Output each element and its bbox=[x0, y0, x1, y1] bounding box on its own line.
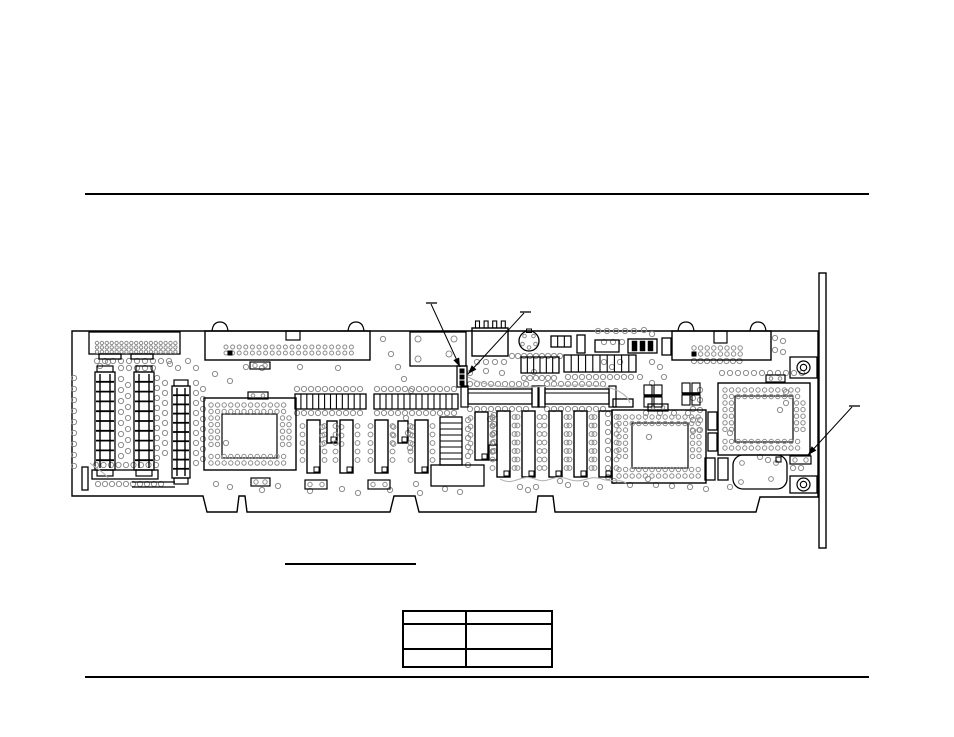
connector-tab bbox=[99, 354, 121, 359]
relay-pads bbox=[415, 336, 457, 362]
edge-connector-left-pins bbox=[95, 341, 177, 353]
small-ic bbox=[82, 467, 88, 490]
legend-cell bbox=[467, 625, 551, 650]
resistor-pack bbox=[295, 394, 366, 409]
aux-header-connector bbox=[672, 322, 771, 360]
leader-line bbox=[426, 303, 460, 367]
small-ic bbox=[708, 433, 717, 451]
dram-chip bbox=[542, 411, 569, 477]
pga-chip-left bbox=[204, 392, 296, 470]
jumper-pads bbox=[251, 478, 270, 486]
oscillator-can bbox=[733, 455, 787, 489]
crystal-oscillator bbox=[431, 465, 484, 486]
bracket bbox=[819, 273, 826, 548]
jumper-pads bbox=[305, 480, 327, 489]
config-jumper bbox=[457, 366, 467, 387]
memory-socket-3 bbox=[172, 380, 190, 484]
via-pair bbox=[790, 465, 803, 470]
legend-cell bbox=[467, 612, 551, 625]
pin1-mark bbox=[228, 351, 232, 355]
resistor-pack bbox=[564, 355, 636, 372]
legend-cell bbox=[404, 625, 467, 650]
memory-socket-1 bbox=[95, 366, 115, 476]
legend-cell bbox=[404, 650, 467, 666]
jumper-pads bbox=[368, 480, 390, 489]
legend-cell bbox=[404, 612, 467, 625]
component-array bbox=[628, 339, 657, 353]
small-ic bbox=[708, 412, 717, 430]
capacitor-pair bbox=[682, 383, 700, 405]
legend-cell bbox=[467, 650, 551, 666]
resistor-pack bbox=[374, 394, 458, 409]
memory-socket-2 bbox=[134, 366, 154, 476]
legend-table bbox=[402, 610, 553, 668]
small-component bbox=[551, 336, 571, 347]
pga-chip-right bbox=[718, 375, 810, 455]
sipp-socket-2 bbox=[538, 386, 616, 407]
resistor-pack bbox=[521, 357, 559, 373]
dram-chip bbox=[515, 411, 542, 477]
small-ic bbox=[662, 338, 671, 355]
leader-line bbox=[808, 406, 860, 455]
bottom-rule bbox=[85, 676, 869, 678]
mounting-hole-bottom bbox=[790, 476, 817, 493]
manual-page bbox=[0, 0, 954, 737]
jumper-pads-right bbox=[790, 456, 811, 464]
caption-underline bbox=[285, 563, 416, 565]
dram-chip bbox=[567, 411, 594, 477]
pin1-mark bbox=[692, 352, 696, 356]
keyboard-din-connector bbox=[519, 329, 539, 351]
dram-chip bbox=[490, 411, 517, 477]
dip-chip bbox=[333, 420, 360, 473]
connector-tab bbox=[131, 354, 153, 359]
jumper-pads bbox=[250, 362, 270, 369]
sip-resistor-network bbox=[440, 417, 462, 465]
sipp-socket-1 bbox=[461, 386, 539, 407]
small-ic bbox=[718, 458, 728, 480]
small-ic bbox=[577, 335, 585, 353]
